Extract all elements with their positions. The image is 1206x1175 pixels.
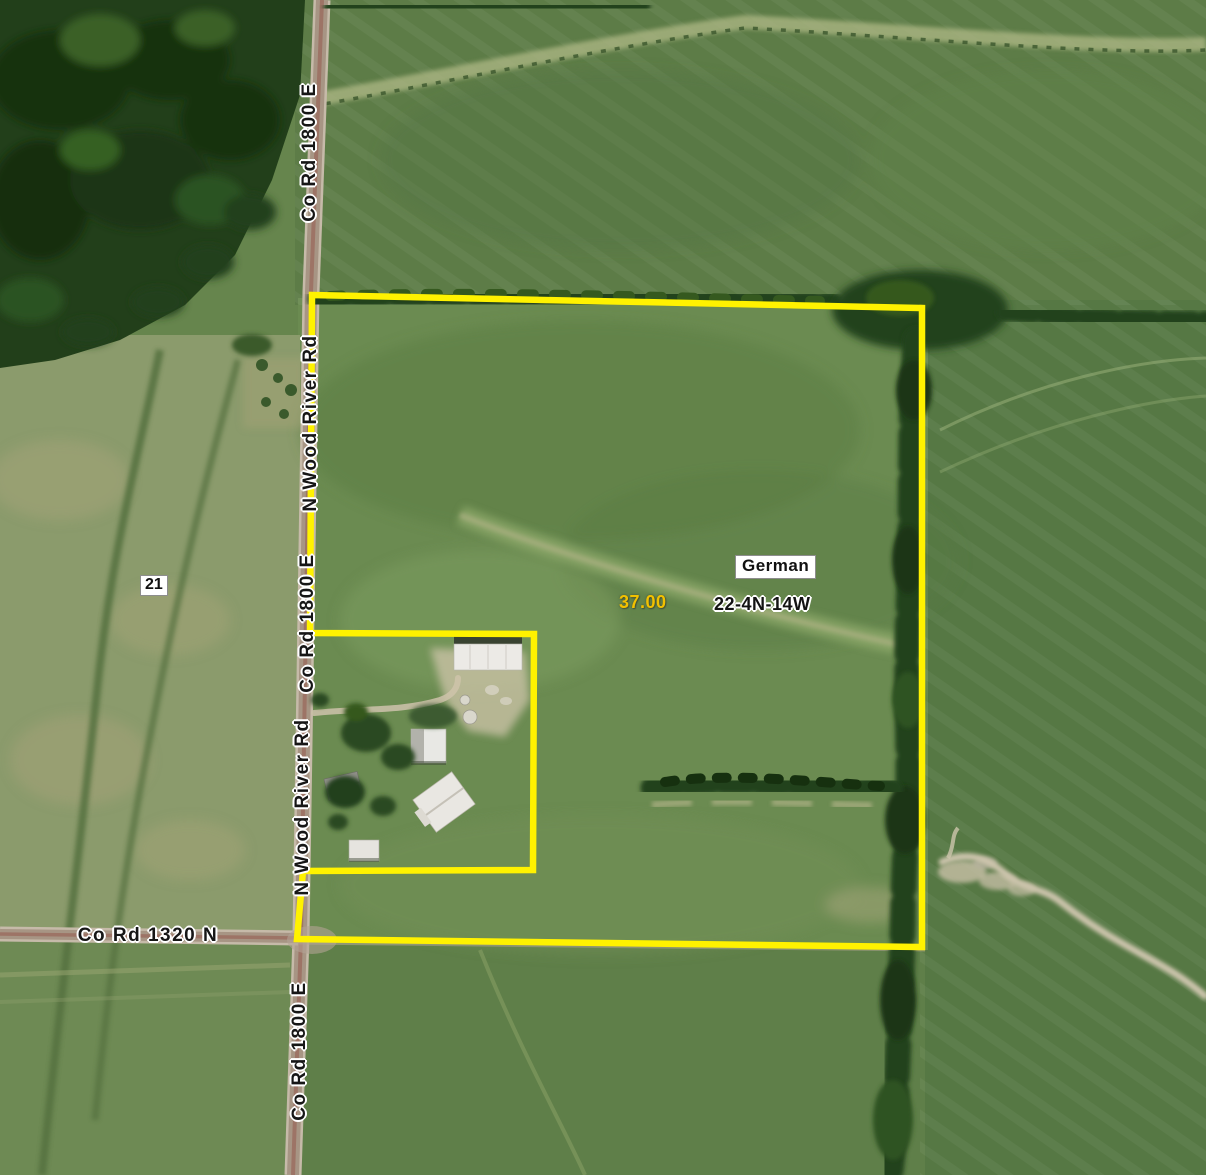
grain-bin	[463, 710, 477, 724]
road-label-co-rd-1320-n: Co Rd 1320 N	[68, 925, 228, 947]
section-number-label: 21	[140, 575, 168, 596]
grain-bin	[460, 695, 470, 705]
aerial-parcel-map[interactable]: Co Rd 1800 E N Wood River Rd Co Rd 1800 …	[0, 0, 1206, 1175]
road-label-n-wood-river-rd-lower: N Wood River Rd	[292, 695, 314, 919]
machine-shed-building	[411, 729, 446, 765]
basemap-art	[0, 0, 1206, 1175]
small-shed-building	[349, 840, 379, 862]
road-label-co-rd-1800-e-south: Co Rd 1800 E	[289, 966, 311, 1136]
section-township-range-label: 22-4N-14W	[714, 594, 811, 615]
parcel-acreage-label: 37.00	[619, 592, 667, 613]
road-label-co-rd-1800-e-middle: Co Rd 1800 E	[297, 528, 319, 718]
tree-row-top-edge	[332, 6, 642, 9]
road-label-co-rd-1800-e-north: Co Rd 1800 E	[299, 67, 321, 237]
road-label-n-wood-river-rd-upper: N Wood River Rd	[300, 311, 322, 535]
barn-building	[454, 636, 522, 670]
township-name-label: German	[735, 555, 816, 579]
